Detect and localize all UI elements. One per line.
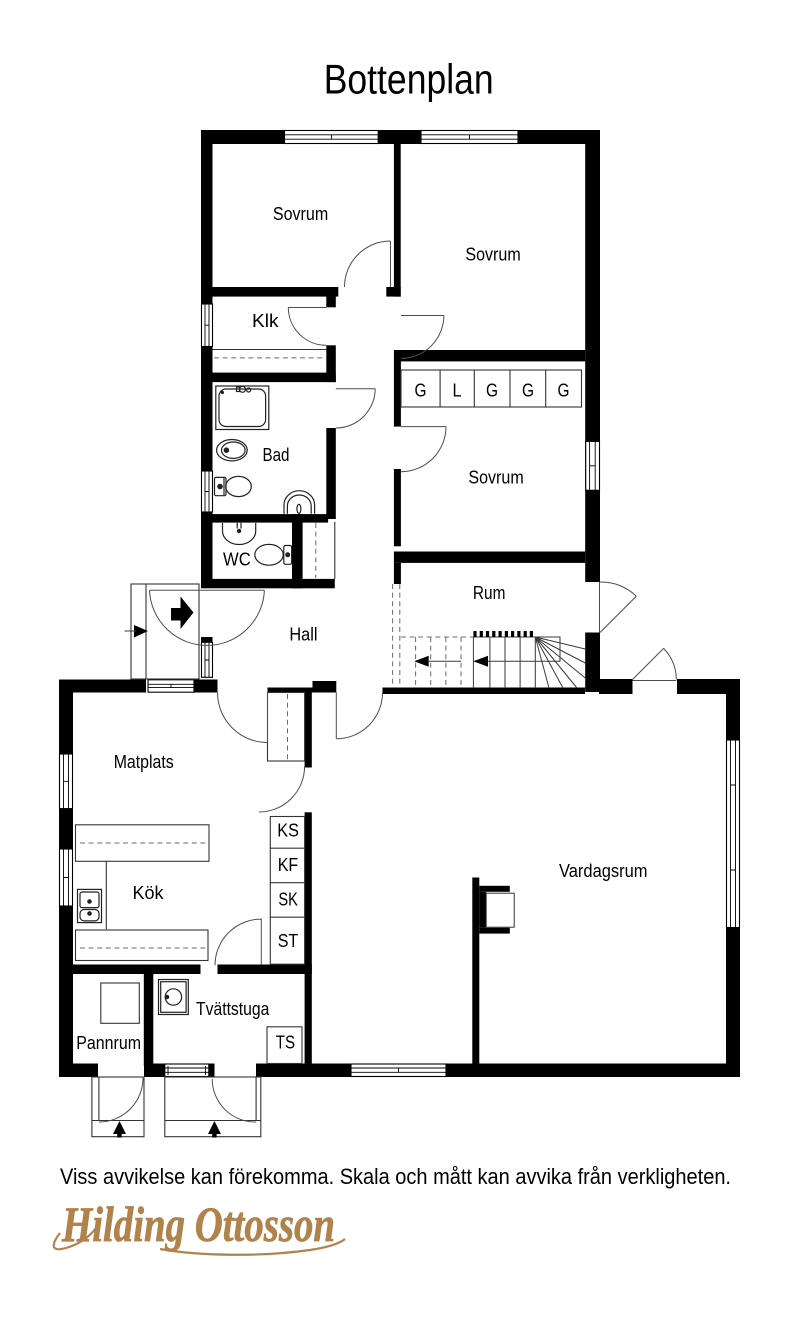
svg-text:Klk: Klk bbox=[252, 310, 279, 331]
svg-text:Sovrum: Sovrum bbox=[465, 244, 520, 265]
svg-text:Viss avvikelse kan förekomma.: Viss avvikelse kan förekomma. Skala och … bbox=[60, 1164, 731, 1189]
svg-text:Matplats: Matplats bbox=[114, 751, 174, 772]
svg-text:Rum: Rum bbox=[473, 582, 506, 603]
svg-text:Tvättstuga: Tvättstuga bbox=[196, 998, 270, 1019]
svg-text:Vardagsrum: Vardagsrum bbox=[559, 860, 648, 881]
svg-text:G: G bbox=[486, 380, 498, 401]
svg-text:Hilding Ottosson: Hilding Ottosson bbox=[61, 1196, 335, 1252]
svg-text:G: G bbox=[415, 380, 427, 401]
svg-text:Sovrum: Sovrum bbox=[468, 467, 523, 488]
svg-text:WC: WC bbox=[223, 549, 251, 570]
svg-text:Bad: Bad bbox=[263, 444, 290, 465]
svg-text:Bottenplan: Bottenplan bbox=[324, 56, 494, 103]
svg-text:Pannrum: Pannrum bbox=[76, 1032, 141, 1053]
svg-text:Sovrum: Sovrum bbox=[273, 203, 328, 224]
svg-text:ST: ST bbox=[278, 930, 299, 951]
svg-text:Kök: Kök bbox=[133, 882, 165, 903]
svg-text:Hall: Hall bbox=[289, 624, 317, 645]
svg-text:KS: KS bbox=[277, 820, 299, 841]
svg-text:L: L bbox=[453, 380, 462, 401]
svg-text:KF: KF bbox=[278, 854, 299, 875]
svg-text:SK: SK bbox=[278, 889, 298, 910]
svg-text:G: G bbox=[522, 380, 534, 401]
svg-text:TS: TS bbox=[276, 1032, 295, 1053]
svg-text:G: G bbox=[558, 380, 570, 401]
